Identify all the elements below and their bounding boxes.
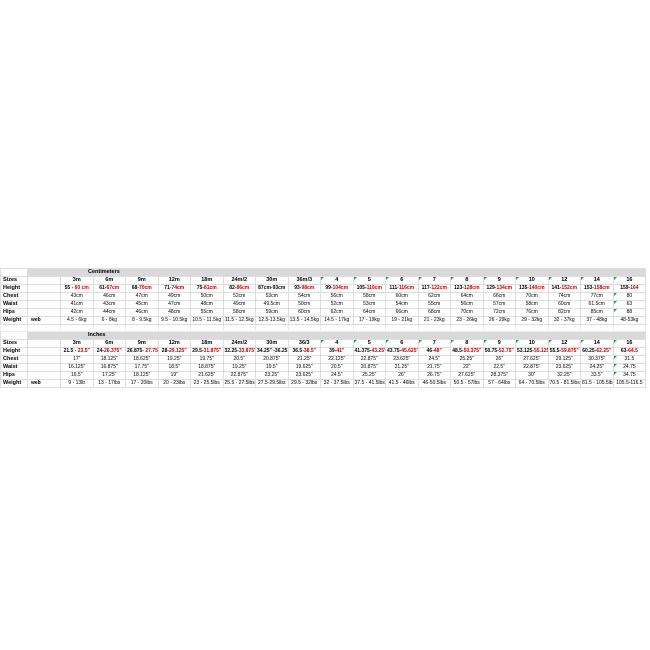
empty-cell[interactable] [61, 325, 94, 332]
cell-cm-height-18m[interactable]: 75-81cm [191, 285, 224, 293]
height-min-value: 21.5 - [64, 348, 78, 354]
cell-in-chest-18m[interactable]: 19.75" [191, 356, 224, 364]
cell-in-weight-18m[interactable]: 23 - 25.5lbs [191, 380, 224, 388]
cell-cm-hips-24m-2[interactable]: 58cm [223, 309, 256, 317]
cell-in-waist-36-3[interactable]: 19.625" [288, 364, 321, 372]
cell-cm-weight-12[interactable]: 32 - 37kg [548, 317, 581, 325]
cell-cm-hips-14[interactable]: 85cm [581, 309, 614, 317]
cell-in-hips-6[interactable]: 26" [386, 372, 419, 380]
cell-in-height-16[interactable]: 63-64.5 [613, 348, 646, 356]
size-header-cm-3m[interactable]: 3m [61, 277, 94, 285]
cell-cm-hips-6[interactable]: 66cm [386, 309, 419, 317]
size-header-label: 4 [335, 277, 338, 283]
cell-cm-height-9m[interactable]: 68-70cm [126, 285, 159, 293]
cell-cm-chest-9m[interactable]: 47cm [126, 293, 159, 301]
cell-in-hips-4[interactable]: 24.5" [321, 372, 354, 380]
cell-cm-hips-18m[interactable]: 55cm [191, 309, 224, 317]
height-max-value: 81cm [204, 285, 217, 291]
cell-cm-height-9[interactable]: 129-134cm [483, 285, 516, 293]
cell-in-waist-12[interactable]: 23.625" [548, 364, 581, 372]
weight-value: 32 - 37kg [554, 317, 575, 323]
cell-cm-height-36m-3[interactable]: 93-98cm [288, 285, 321, 293]
empty-cell[interactable] [321, 325, 354, 332]
cell-cm-waist-30m[interactable]: 49.5cm [256, 301, 289, 309]
cell-in-waist-14[interactable]: 24.25" [581, 364, 614, 372]
corner-cell-cm[interactable] [1, 269, 28, 277]
height-min-value: 55.5- [550, 348, 561, 354]
row-label-weight-cm[interactable]: Weight [1, 317, 28, 325]
cell-cm-weight-8[interactable]: 23 - 26kg [451, 317, 484, 325]
hips-value: 85cm [591, 309, 603, 315]
cell-in-weight-30m[interactable]: 27.5-29.5lbs [256, 380, 289, 388]
cell-cm-height-16[interactable]: 159-164 [613, 285, 646, 293]
empty-cell[interactable] [451, 325, 484, 332]
cell-in-waist-4[interactable]: 20.5" [321, 364, 354, 372]
cell-cm-waist-3m[interactable]: 41cm [61, 301, 94, 309]
hips-value: 17.25" [102, 372, 116, 378]
cell-cm-hips-30m[interactable]: 59cm [256, 309, 289, 317]
cell-cm-height-14[interactable]: 153-158cm [581, 285, 614, 293]
cell-in-height-6m[interactable]: 24-26.375" [93, 348, 126, 356]
corner-cell-in[interactable] [1, 332, 28, 340]
cell-in-chest-12m[interactable]: 19.25" [158, 356, 191, 364]
cell-cm-waist-14[interactable]: 61.5cm [581, 301, 614, 309]
section-title-cm[interactable]: Centimeters [28, 269, 646, 277]
cell-cm-chest-18m[interactable]: 50cm [191, 293, 224, 301]
size-header-label: 9 [498, 340, 501, 346]
cell-in-waist-3m[interactable]: 16.125" [61, 364, 94, 372]
cell-cm-hips-16[interactable]: 88 [613, 309, 646, 317]
cell-in-weight-5[interactable]: 37.5 - 41.5lbs [353, 380, 386, 388]
empty-cell[interactable] [223, 325, 256, 332]
row-label-waist-in[interactable]: Waist [1, 364, 28, 372]
size-header-cm-12m[interactable]: 12m [158, 277, 191, 285]
cell-in-hips-7[interactable]: 26.75" [418, 372, 451, 380]
stored-as-text-flag-icon [614, 293, 617, 296]
cell-in-waist-6m[interactable]: 16.875" [93, 364, 126, 372]
cell-cm-waist-5[interactable]: 53cm [353, 301, 386, 309]
cell-cm-chest-3m[interactable]: 43cm [61, 293, 94, 301]
size-header-cm-12[interactable]: 12 [548, 277, 581, 285]
cell-in-weight-24m-2[interactable]: 25.5 - 27.5lbs [223, 380, 256, 388]
cell-in-height-9[interactable]: 50.75-52.75" [483, 348, 516, 356]
cell-in-weight-9m[interactable]: 17 - 20lbs [126, 380, 159, 388]
size-header-in-6m[interactable]: 6m [93, 340, 126, 348]
cell-cm-weight-6m[interactable]: 6 - 8kg [93, 317, 126, 325]
empty-cell[interactable] [548, 325, 581, 332]
cell-cm-height-5[interactable]: 105-110cm [353, 285, 386, 293]
size-header-cm-8[interactable]: 8 [451, 277, 484, 285]
cell-in-hips-8[interactable]: 27.625" [451, 372, 484, 380]
size-header-cm-16[interactable]: 16 [613, 277, 646, 285]
row-label: Height [3, 285, 20, 291]
size-header-in-30m[interactable]: 30m [256, 340, 289, 348]
cell-in-height-36-3[interactable]: 36.5-38.5" [288, 348, 321, 356]
empty-cell[interactable] [353, 325, 386, 332]
cell-cm-weight-9m[interactable]: 8 - 9.5kg [126, 317, 159, 325]
size-header-cm-4[interactable]: 4 [321, 277, 354, 285]
cell-in-hips-36-3[interactable]: 23.625" [288, 372, 321, 380]
cell-in-hips-24m-2[interactable]: 22.875" [223, 372, 256, 380]
cell-in-waist-7[interactable]: 21.75" [418, 364, 451, 372]
empty-cell[interactable] [418, 325, 451, 332]
height-min-value: 46- [427, 348, 434, 354]
cell-in-waist-9[interactable]: 22.5" [483, 364, 516, 372]
hips-value: 26.75" [427, 372, 441, 378]
cell-in-height-12[interactable]: 55.5-59.875" [548, 348, 581, 356]
size-header-in-9m[interactable]: 9m [126, 340, 159, 348]
cell-in-chest-6m[interactable]: 18.125" [93, 356, 126, 364]
size-header-in-8[interactable]: 8 [451, 340, 484, 348]
row-label-height-cm[interactable]: Height [1, 285, 28, 293]
cell-in-chest-12[interactable]: 29.125" [548, 356, 581, 364]
row-label-height-in[interactable]: Height [1, 348, 28, 356]
web-column-cell-in[interactable] [28, 356, 61, 364]
cell-cm-weight-10[interactable]: 29 - 32kg [516, 317, 549, 325]
cell-cm-chest-9[interactable]: 66cm [483, 293, 516, 301]
cell-in-hips-18m[interactable]: 21.625" [191, 372, 224, 380]
cell-cm-waist-7[interactable]: 55cm [418, 301, 451, 309]
cell-cm-hips-5[interactable]: 64cm [353, 309, 386, 317]
empty-cell[interactable] [1, 325, 28, 332]
cell-in-weight-7[interactable]: 46-50.5lbs [418, 380, 451, 388]
cell-in-chest-30m[interactable]: 20.875" [256, 356, 289, 364]
cell-cm-height-12[interactable]: 141-152cm [548, 285, 581, 293]
row-label-sizes-in[interactable]: Sizes [1, 340, 28, 348]
cell-in-weight-10[interactable]: 64 - 70.5lbs [516, 380, 549, 388]
height-min-value: 26.875- [127, 348, 145, 354]
height-min-value: 28- [162, 348, 169, 354]
height-max-value: 67cm [106, 285, 119, 291]
size-header-cm-24m-2[interactable]: 24m/2 [223, 277, 256, 285]
cell-cm-chest-5[interactable]: 58cm [353, 293, 386, 301]
cell-cm-weight-36m-3[interactable]: 13.5 - 14.5kg [288, 317, 321, 325]
waist-value: 18.5" [168, 364, 180, 370]
cell-cm-hips-9[interactable]: 72cm [483, 309, 516, 317]
cell-cm-weight-7[interactable]: 21 - 23kg [418, 317, 451, 325]
cell-in-height-5[interactable]: 41.375-43.25" [353, 348, 386, 356]
cell-in-waist-9m[interactable]: 17.75" [126, 364, 159, 372]
cell-cm-hips-9m[interactable]: 46cm [126, 309, 159, 317]
cell-cm-waist-9m[interactable]: 45cm [126, 301, 159, 309]
height-max-value: 60 cm [75, 285, 89, 291]
cell-in-chest-7[interactable]: 24.5" [418, 356, 451, 364]
hips-value: 25.25" [362, 372, 376, 378]
cell-in-weight-6m[interactable]: 13 - 17lbs [93, 380, 126, 388]
size-header-cm-10[interactable]: 10 [516, 277, 549, 285]
empty-cell[interactable] [191, 325, 224, 332]
cell-cm-weight-3m[interactable]: 4.5 - 6kg [61, 317, 94, 325]
cell-cm-waist-6[interactable]: 54cm [386, 301, 419, 309]
cell-cm-waist-9[interactable]: 57cm [483, 301, 516, 309]
size-header-label: 6m [105, 340, 113, 346]
waist-value: 45cm [136, 301, 148, 307]
size-header-cm-9m[interactable]: 9m [126, 277, 159, 285]
cell-cm-chest-30m[interactable]: 53cm [256, 293, 289, 301]
size-header-in-24m-2[interactable]: 24m/2 [223, 340, 256, 348]
cell-cm-height-12m[interactable]: 71-74cm [158, 285, 191, 293]
cell-cm-waist-24m-2[interactable]: 49cm [223, 301, 256, 309]
web-column-cell-in[interactable]: web [28, 380, 61, 388]
stored-as-text-flag-icon [614, 340, 617, 343]
cell-cm-weight-16[interactable]: 48-53kg [613, 317, 646, 325]
cell-in-hips-10[interactable]: 30" [516, 372, 549, 380]
cell-cm-waist-6m[interactable]: 43cm [93, 301, 126, 309]
web-column-cell-cm[interactable] [28, 277, 61, 285]
size-header-in-16[interactable]: 16 [613, 340, 646, 348]
cell-in-height-3m[interactable]: 21.5 - 23.5" [61, 348, 94, 356]
cell-cm-height-30m[interactable]: 87cm-93cm [256, 285, 289, 293]
size-header-cm-18m[interactable]: 18m [191, 277, 224, 285]
row-label-chest-in[interactable]: Chest [1, 356, 28, 364]
size-header-cm-6[interactable]: 6 [386, 277, 419, 285]
cell-cm-chest-14[interactable]: 77cm [581, 293, 614, 301]
cell-cm-hips-6m[interactable]: 44cm [93, 309, 126, 317]
cell-cm-waist-16[interactable]: 63 [613, 301, 646, 309]
cell-cm-weight-24m-2[interactable]: 11.5 - 12.5kg [223, 317, 256, 325]
size-header-cm-5[interactable]: 5 [353, 277, 386, 285]
cell-cm-waist-4[interactable]: 52cm [321, 301, 354, 309]
hips-value: 33.5" [591, 372, 603, 378]
cell-in-chest-9m[interactable]: 18.625" [126, 356, 159, 364]
cell-cm-hips-10[interactable]: 76cm [516, 309, 549, 317]
row-label-waist-cm[interactable]: Waist [1, 301, 28, 309]
empty-cell[interactable] [483, 325, 516, 332]
size-header-in-36-3[interactable]: 36/3 [288, 340, 321, 348]
cell-in-height-4[interactable]: 39-41" [321, 348, 354, 356]
cell-cm-waist-36m-3[interactable]: 50cm [288, 301, 321, 309]
cell-in-hips-9m[interactable]: 18.125" [126, 372, 159, 380]
chest-value: 54cm [298, 293, 310, 299]
height-max-value: 152cm [561, 285, 577, 291]
cell-in-waist-6[interactable]: 21.25" [386, 364, 419, 372]
cell-in-hips-12m[interactable]: 19" [158, 372, 191, 380]
cell-cm-chest-10[interactable]: 70cm [516, 293, 549, 301]
cell-in-weight-9[interactable]: 57 - 64lbs [483, 380, 516, 388]
cell-cm-chest-4[interactable]: 56cm [321, 293, 354, 301]
row-label-hips-in[interactable]: Hips [1, 372, 28, 380]
cell-in-chest-5[interactable]: 22.875" [353, 356, 386, 364]
empty-cell[interactable] [516, 325, 549, 332]
section-title-in[interactable]: Inches [28, 332, 646, 340]
cell-cm-hips-12[interactable]: 82cm [548, 309, 581, 317]
cell-in-weight-12[interactable]: 70.5 - 81.5lbs [548, 380, 581, 388]
cell-in-hips-9[interactable]: 28.375" [483, 372, 516, 380]
cell-in-waist-12m[interactable]: 18.5" [158, 364, 191, 372]
web-column-cell-in[interactable] [28, 348, 61, 356]
cell-in-chest-14[interactable]: 30.375" [581, 356, 614, 364]
waist-value: 49cm [233, 301, 245, 307]
cell-in-weight-16[interactable]: 105.5-116.5 [613, 380, 646, 388]
cell-in-height-30m[interactable]: 34.25" -36.25 [256, 348, 289, 356]
cell-in-hips-3m[interactable]: 16.5" [61, 372, 94, 380]
size-header-in-4[interactable]: 4 [321, 340, 354, 348]
size-header-cm-6m[interactable]: 6m [93, 277, 126, 285]
cell-in-chest-36-3[interactable]: 21.25" [288, 356, 321, 364]
cell-cm-hips-36m-3[interactable]: 60cm [288, 309, 321, 317]
cell-cm-height-24m-2[interactable]: 82-86cm [223, 285, 256, 293]
cell-in-hips-6m[interactable]: 17.25" [93, 372, 126, 380]
cell-cm-height-10[interactable]: 135-140cm [516, 285, 549, 293]
empty-cell[interactable] [256, 325, 289, 332]
size-header-in-12m[interactable]: 12m [158, 340, 191, 348]
cell-in-hips-16[interactable]: 34.75 [613, 372, 646, 380]
cell-in-height-9m[interactable]: 26.875- 27.75" [126, 348, 159, 356]
cell-cm-hips-8[interactable]: 70cm [451, 309, 484, 317]
empty-cell[interactable] [126, 325, 159, 332]
height-min-value: 34.25" -36.25 [257, 348, 287, 354]
cell-in-waist-8[interactable]: 22" [451, 364, 484, 372]
cell-cm-weight-14[interactable]: 37 - 48kg [581, 317, 614, 325]
web-column-cell-in[interactable] [28, 364, 61, 372]
cell-cm-waist-8[interactable]: 56cm [451, 301, 484, 309]
cell-cm-chest-8[interactable]: 64cm [451, 293, 484, 301]
cell-in-height-10[interactable]: 53.125-55.125" [516, 348, 549, 356]
cell-cm-waist-10[interactable]: 58cm [516, 301, 549, 309]
cell-cm-hips-12m[interactable]: 48cm [158, 309, 191, 317]
web-column-cell-in[interactable] [28, 340, 61, 348]
cell-cm-waist-12m[interactable]: 47cm [158, 301, 191, 309]
size-header-cm-9[interactable]: 9 [483, 277, 516, 285]
cell-cm-waist-12[interactable]: 60cm [548, 301, 581, 309]
cell-in-chest-10[interactable]: 27.625" [516, 356, 549, 364]
cell-cm-chest-24m-2[interactable]: 52cm [223, 293, 256, 301]
cell-cm-chest-6m[interactable]: 46cm [93, 293, 126, 301]
web-column-cell-cm[interactable] [28, 301, 61, 309]
cell-cm-weight-30m[interactable]: 12.5-13.5kg [256, 317, 289, 325]
empty-cell[interactable] [28, 325, 61, 332]
cell-in-waist-16[interactable]: 24.75 [613, 364, 646, 372]
cell-in-waist-10[interactable]: 22.875" [516, 364, 549, 372]
empty-cell[interactable] [93, 325, 126, 332]
cell-in-height-18m[interactable]: 29.5-31.875" [191, 348, 224, 356]
cell-cm-weight-12m[interactable]: 9.5 - 10.5kg [158, 317, 191, 325]
cell-cm-hips-4[interactable]: 62cm [321, 309, 354, 317]
cell-cm-waist-18m[interactable]: 48cm [191, 301, 224, 309]
size-header-cm-30m[interactable]: 30m [256, 277, 289, 285]
cell-cm-chest-6[interactable]: 60cm [386, 293, 419, 301]
cell-cm-hips-7[interactable]: 68cm [418, 309, 451, 317]
cell-in-weight-36-3[interactable]: 29.5 - 32lbs [288, 380, 321, 388]
size-header-in-12[interactable]: 12 [548, 340, 581, 348]
cell-in-height-7[interactable]: 46-48" [418, 348, 451, 356]
cell-cm-chest-16[interactable]: 80 [613, 293, 646, 301]
row-label-chest-cm[interactable]: Chest [1, 293, 28, 301]
size-header-cm-7[interactable]: 7 [418, 277, 451, 285]
cell-cm-height-6[interactable]: 111-116cm [386, 285, 419, 293]
size-header-in-9[interactable]: 9 [483, 340, 516, 348]
weight-value: 105.5-116.5 [616, 380, 642, 386]
cell-in-waist-18m[interactable]: 18.875" [191, 364, 224, 372]
cell-cm-weight-5[interactable]: 17 - 19kg [353, 317, 386, 325]
empty-cell[interactable] [613, 325, 646, 332]
size-header-in-5[interactable]: 5 [353, 340, 386, 348]
height-min-value: 129- [486, 285, 496, 291]
cell-in-weight-14[interactable]: 81.5 - 105.5lbs [581, 380, 614, 388]
waist-value: 23.625" [556, 364, 573, 370]
spacer-row [1, 325, 646, 332]
cell-in-height-8[interactable]: 48.5-50.375" [451, 348, 484, 356]
cell-in-waist-5[interactable]: 20.875" [353, 364, 386, 372]
weight-value: 23 - 25.5lbs [194, 380, 220, 386]
cell-cm-chest-7[interactable]: 62cm [418, 293, 451, 301]
size-header-in-14[interactable]: 14 [581, 340, 614, 348]
cell-in-weight-6[interactable]: 41.5 - 46lbs [386, 380, 419, 388]
cell-in-chest-3m[interactable]: 17" [61, 356, 94, 364]
empty-cell[interactable] [386, 325, 419, 332]
empty-cell[interactable] [581, 325, 614, 332]
web-column-cell-cm[interactable] [28, 285, 61, 293]
cell-cm-weight-6[interactable]: 19 - 21kg [386, 317, 419, 325]
row-label-sizes-cm[interactable]: Sizes [1, 277, 28, 285]
size-header-in-7[interactable]: 7 [418, 340, 451, 348]
cell-in-hips-30m[interactable]: 23.25" [256, 372, 289, 380]
cell-cm-height-8[interactable]: 123-128cm [451, 285, 484, 293]
cell-cm-weight-18m[interactable]: 10.5 - 11.5kg [191, 317, 224, 325]
cell-cm-hips-3m[interactable]: 42cm [61, 309, 94, 317]
cell-in-hips-14[interactable]: 33.5" [581, 372, 614, 380]
cell-in-waist-24m-2[interactable]: 19.25" [223, 364, 256, 372]
row-label-hips-cm[interactable]: Hips [1, 309, 28, 317]
cell-cm-weight-4[interactable]: 14.5 - 17kg [321, 317, 354, 325]
cell-in-chest-16[interactable]: 31.5 [613, 356, 646, 364]
web-column-cell-cm[interactable]: web [28, 317, 61, 325]
chest-value: 74cm [558, 293, 570, 299]
size-header-in-3m[interactable]: 3m [61, 340, 94, 348]
cell-cm-height-4[interactable]: 99-104cm [321, 285, 354, 293]
cell-cm-height-3m[interactable]: 55 - 60 cm [61, 285, 94, 293]
cell-in-chest-4[interactable]: 22.125" [321, 356, 354, 364]
web-column-cell-cm[interactable] [28, 293, 61, 301]
empty-cell[interactable] [288, 325, 321, 332]
height-min-value: 105- [357, 285, 367, 291]
cell-in-height-12m[interactable]: 28-29.125" [158, 348, 191, 356]
cell-in-chest-24m-2[interactable]: 20.5" [223, 356, 256, 364]
size-header-cm-14[interactable]: 14 [581, 277, 614, 285]
cell-in-chest-6[interactable]: 23.625" [386, 356, 419, 364]
cell-in-hips-5[interactable]: 25.25" [353, 372, 386, 380]
cell-cm-height-7[interactable]: 117-122cm [418, 285, 451, 293]
cell-in-height-6[interactable]: 43.75-45.625" [386, 348, 419, 356]
cell-in-waist-30m[interactable]: 19.5" [256, 364, 289, 372]
cell-in-weight-4[interactable]: 32 - 37.5lbs [321, 380, 354, 388]
size-header-in-10[interactable]: 10 [516, 340, 549, 348]
cell-in-weight-12m[interactable]: 20 - 23lbs [158, 380, 191, 388]
waist-value: 50cm [298, 301, 310, 307]
cell-cm-chest-12[interactable]: 74cm [548, 293, 581, 301]
cell-in-weight-3m[interactable]: 9 - 13lb [61, 380, 94, 388]
size-header-in-6[interactable]: 6 [386, 340, 419, 348]
cell-in-hips-12[interactable]: 32.25" [548, 372, 581, 380]
cell-cm-weight-9[interactable]: 26 - 29kg [483, 317, 516, 325]
web-column-cell-cm[interactable] [28, 309, 61, 317]
size-header-in-18m[interactable]: 18m [191, 340, 224, 348]
cell-in-chest-9[interactable]: 26" [483, 356, 516, 364]
chest-value: 18.125" [101, 356, 118, 362]
size-header-cm-36m-3[interactable]: 36m/3 [288, 277, 321, 285]
row-label-weight-in[interactable]: Weight [1, 380, 28, 388]
cell-cm-chest-36m-3[interactable]: 54cm [288, 293, 321, 301]
cell-cm-chest-12m[interactable]: 49cm [158, 293, 191, 301]
size-header-label: 8 [465, 277, 468, 283]
cell-in-height-24m-2[interactable]: 32.25-33.875" [223, 348, 256, 356]
web-column-cell-in[interactable] [28, 372, 61, 380]
cell-in-height-14[interactable]: 60.25-62.25" [581, 348, 614, 356]
cell-in-chest-8[interactable]: 25.25" [451, 356, 484, 364]
empty-cell[interactable] [158, 325, 191, 332]
cell-in-weight-8[interactable]: 50.5 - 57lbs [451, 380, 484, 388]
cell-cm-height-6m[interactable]: 61-67cm [93, 285, 126, 293]
